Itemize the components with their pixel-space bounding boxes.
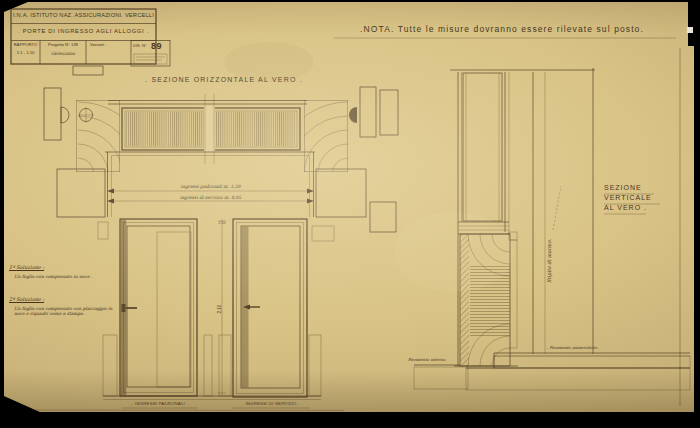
- door-base-walls: [28, 335, 344, 411]
- horizontal-section-title: . SEZIONE ORIZZONTALE AL VERO .: [138, 76, 310, 84]
- door-left-label: . INGRESSI PADRONALI .: [122, 402, 198, 407]
- door-height-rotated: 2,10: [217, 296, 222, 322]
- door-right-label: . INGRESSI DI SERVIZIO .: [232, 402, 310, 407]
- solution1-title: 1ª Soluzione :: [9, 265, 44, 271]
- door-elevation-right: [233, 219, 307, 397]
- photographed-drawing-sheet: I.N.A. ISTITUTO NAZ. ASSICURAZIONI. VERC…: [0, 0, 700, 428]
- door-elevation-left: [120, 219, 197, 396]
- paper-sheet: I.N.A. ISTITUTO NAZ. ASSICURAZIONI. VERC…: [4, 2, 694, 412]
- background-notch: [688, 0, 700, 46]
- dimension-padronali: ingressi padronali m. 1,20: [144, 184, 277, 189]
- solution1-body: Un foglio con compensato in noce .: [14, 274, 116, 279]
- dimension-servizio: ingressi di servizio m. 0,85: [144, 195, 277, 200]
- rapporto-label: RAPPORTO: [12, 43, 39, 48]
- floor-landing-label: . Pavimento pianerottolo .: [547, 346, 687, 351]
- varianti-label: Varianti :: [90, 43, 130, 48]
- jamb-marble-label: Stipite di marmo.: [547, 230, 553, 292]
- progetto-value: Gerezzano: [41, 51, 85, 56]
- vertical-section-drawing: [414, 48, 690, 406]
- horizontal-section-drawing: [44, 87, 398, 241]
- progetto-label: Progetto N° 138: [41, 43, 85, 48]
- solution2-body: Un foglio con compensato con placcaggio …: [14, 306, 118, 316]
- vertical-section-title-line3: AL VERO .: [604, 204, 652, 214]
- title-block-subject: . PORTE DI INGRESSO AGLI ALLOGGI .: [13, 28, 154, 35]
- dis-number: 89: [151, 41, 167, 51]
- dis-label: DIS. N°: [133, 44, 149, 49]
- door-height-top: 2,10: [215, 221, 229, 225]
- title-block-org: I.N.A. ISTITUTO NAZ. ASSICURAZIONI. VERC…: [13, 12, 147, 19]
- nota-text: .NOTA. Tutte le misure dovranno essere r…: [326, 25, 678, 35]
- corner-highlight: [687, 27, 693, 33]
- rapporto-value: 1:1 - 1:10: [12, 51, 39, 56]
- vertical-section-title-line2: VERTICALE: [604, 194, 652, 204]
- vertical-section-title-line1: SEZIONE: [604, 184, 652, 194]
- solution2-title: 2ª Soluzione :: [9, 297, 44, 303]
- floor-interior-label: Pavimento interno.: [408, 358, 460, 363]
- vertical-section-title: SEZIONE VERTICALE AL VERO .: [604, 184, 652, 214]
